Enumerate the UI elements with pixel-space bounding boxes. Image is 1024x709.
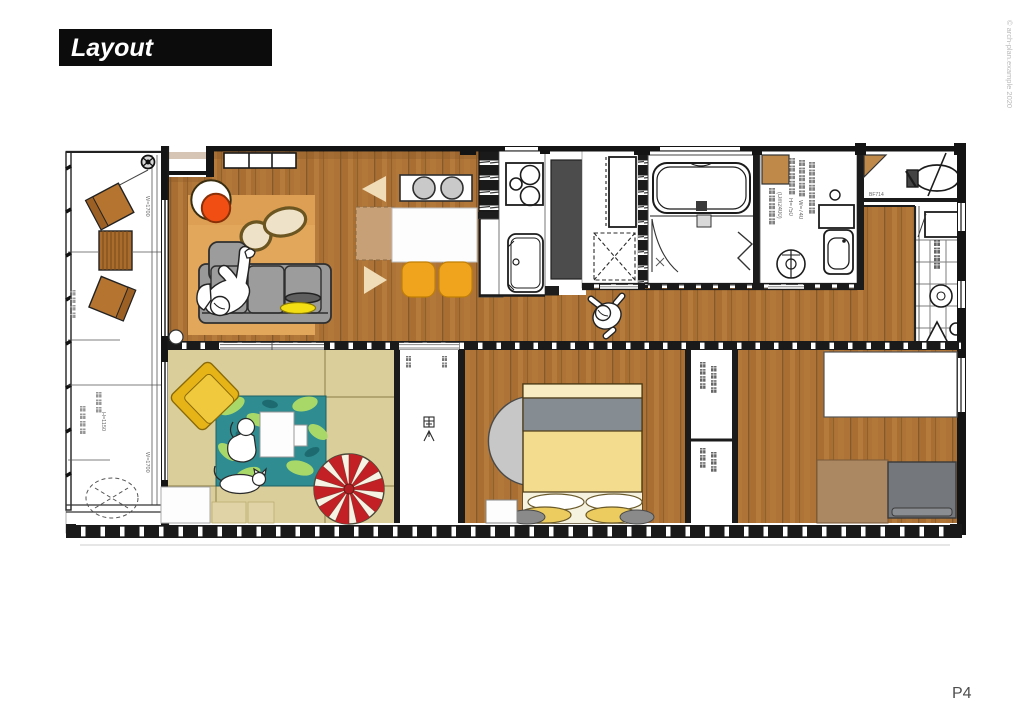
svg-text:Layout: Layout: [71, 34, 155, 62]
svg-text:P4: P4: [952, 685, 972, 702]
svg-text:W=1700: W=1700: [144, 452, 150, 473]
svg-text:BF714: BF714: [869, 192, 884, 198]
svg-text:© arch-plan.example 2020: © arch-plan.example 2020: [1005, 20, 1014, 108]
svg-text:(Dm2400): (Dm2400): [776, 192, 782, 219]
svg-text:W=1700: W=1700: [144, 196, 150, 217]
svg-text:H=750: H=750: [787, 198, 793, 217]
svg-text:W=740: W=740: [797, 200, 803, 220]
svg-text:H=1150: H=1150: [100, 412, 106, 431]
